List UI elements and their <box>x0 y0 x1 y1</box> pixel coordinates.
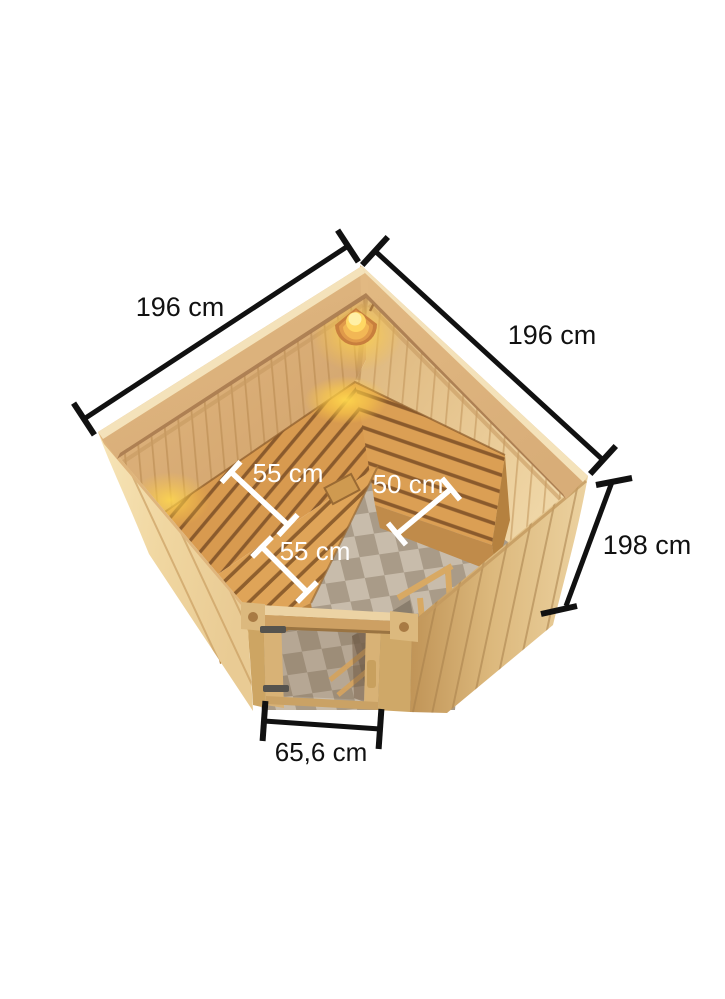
svg-text:198 cm: 198 cm <box>603 530 692 560</box>
svg-text:65,6 cm: 65,6 cm <box>275 737 368 767</box>
svg-text:196 cm: 196 cm <box>508 320 597 350</box>
svg-text:55 cm: 55 cm <box>253 458 324 488</box>
svg-text:55 cm: 55 cm <box>280 536 351 566</box>
svg-text:50 cm: 50 cm <box>373 469 444 499</box>
svg-text:196 cm: 196 cm <box>136 292 225 322</box>
